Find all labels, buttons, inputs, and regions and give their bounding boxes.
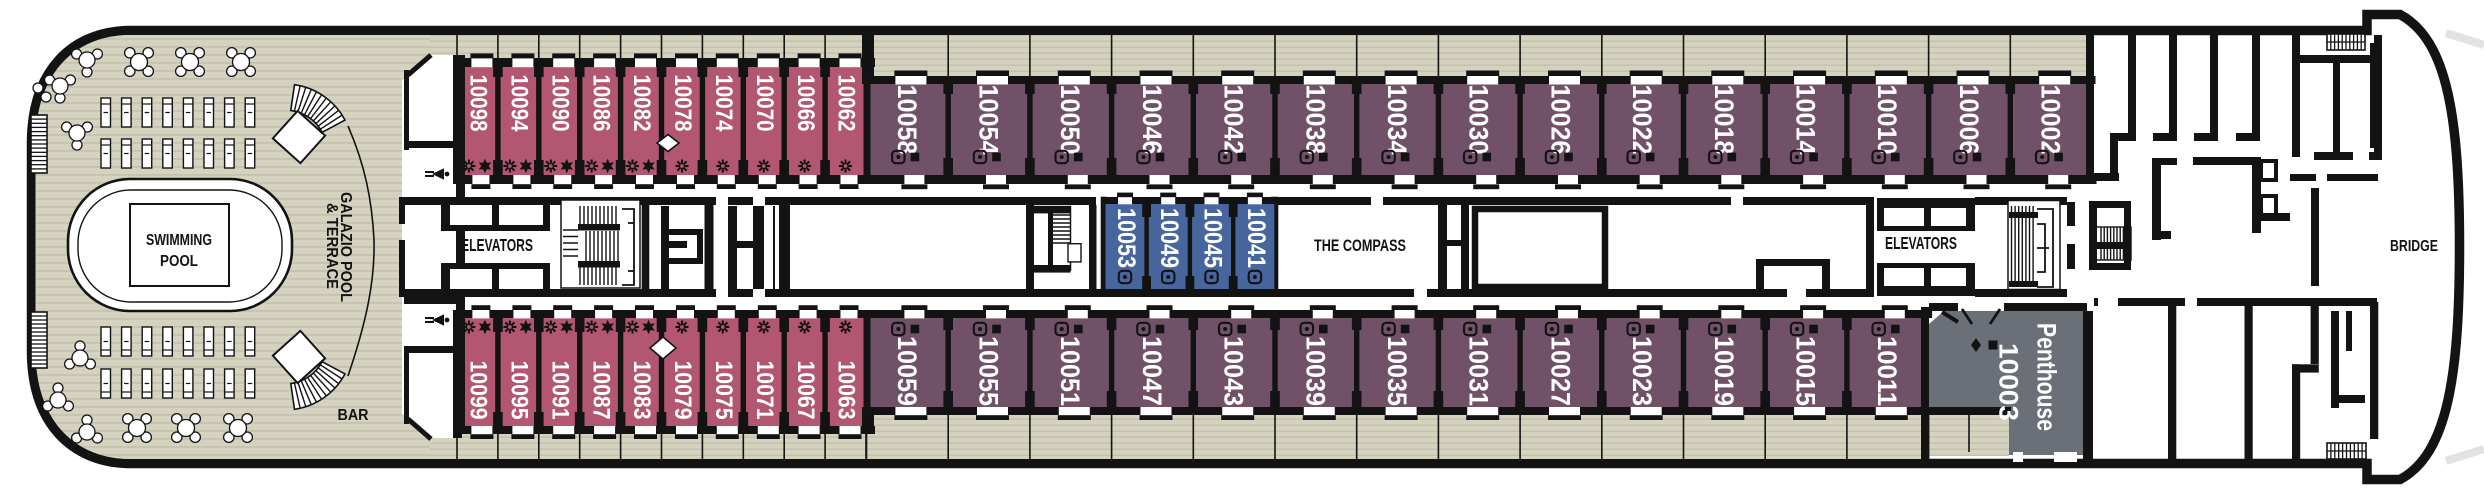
svg-text:10053: 10053 — [1112, 208, 1140, 268]
svg-text:10018: 10018 — [1709, 85, 1739, 155]
svg-text:10071: 10071 — [751, 361, 778, 420]
svg-text:10010: 10010 — [1872, 85, 1902, 155]
svg-text:10095: 10095 — [506, 361, 533, 420]
svg-text:10046: 10046 — [1137, 85, 1167, 155]
svg-text:10063: 10063 — [833, 361, 860, 420]
svg-text:10067: 10067 — [792, 361, 819, 420]
svg-text:10058: 10058 — [892, 85, 922, 155]
svg-text:10086: 10086 — [587, 75, 614, 132]
svg-text:10014: 10014 — [1791, 85, 1821, 155]
svg-text:10078: 10078 — [669, 75, 696, 132]
svg-text:10026: 10026 — [1545, 85, 1575, 155]
svg-text:10098: 10098 — [465, 75, 492, 132]
svg-text:10091: 10091 — [546, 361, 573, 420]
svg-text:10019: 10019 — [1709, 336, 1739, 406]
svg-text:10070: 10070 — [751, 75, 778, 132]
svg-text:10055: 10055 — [974, 336, 1004, 406]
svg-text:10003: 10003 — [1993, 343, 2023, 421]
svg-text:10082: 10082 — [628, 75, 655, 132]
svg-text:10099: 10099 — [465, 361, 492, 420]
svg-text:10038: 10038 — [1300, 85, 1330, 155]
svg-text:10027: 10027 — [1545, 336, 1575, 406]
svg-text:SWIMMING: SWIMMING — [146, 232, 212, 249]
svg-text:10045: 10045 — [1199, 208, 1227, 268]
svg-text:10002: 10002 — [2036, 85, 2066, 155]
svg-text:& TERRACE: & TERRACE — [323, 203, 340, 289]
svg-text:10050: 10050 — [1055, 85, 1085, 155]
svg-text:10075: 10075 — [710, 361, 737, 420]
svg-text:10079: 10079 — [669, 361, 696, 420]
svg-text:10030: 10030 — [1464, 85, 1494, 155]
svg-text:10035: 10035 — [1382, 336, 1412, 406]
svg-text:10051: 10051 — [1055, 336, 1085, 406]
svg-text:BRIDGE: BRIDGE — [2390, 238, 2438, 255]
svg-text:10011: 10011 — [1872, 336, 1902, 406]
svg-text:ELEVATORS: ELEVATORS — [461, 235, 533, 255]
svg-text:10059: 10059 — [892, 336, 922, 406]
svg-text:ELEVATORS: ELEVATORS — [1885, 233, 1957, 253]
svg-text:10094: 10094 — [506, 75, 533, 132]
svg-text:10042: 10042 — [1219, 85, 1249, 155]
svg-text:10043: 10043 — [1219, 336, 1249, 406]
svg-text:10023: 10023 — [1627, 336, 1657, 406]
svg-text:10054: 10054 — [974, 85, 1004, 155]
svg-text:BAR: BAR — [338, 407, 369, 424]
svg-text:THE COMPASS: THE COMPASS — [1314, 237, 1406, 255]
svg-text:10006: 10006 — [1954, 85, 1984, 155]
svg-text:10062: 10062 — [833, 75, 860, 132]
svg-text:10047: 10047 — [1137, 336, 1167, 406]
svg-text:10074: 10074 — [710, 75, 737, 132]
svg-text:10049: 10049 — [1155, 208, 1183, 268]
svg-text:10031: 10031 — [1464, 336, 1494, 406]
svg-text:POOL: POOL — [160, 253, 198, 270]
svg-text:10066: 10066 — [792, 75, 819, 132]
svg-text:10087: 10087 — [587, 361, 614, 420]
svg-text:10090: 10090 — [546, 75, 573, 132]
svg-text:10041: 10041 — [1242, 208, 1270, 268]
svg-text:10022: 10022 — [1627, 85, 1657, 155]
svg-text:10039: 10039 — [1300, 336, 1330, 406]
svg-text:Penthouse: Penthouse — [2031, 323, 2061, 431]
svg-text:10083: 10083 — [628, 361, 655, 420]
svg-text:10015: 10015 — [1791, 336, 1821, 406]
svg-text:10034: 10034 — [1382, 85, 1412, 155]
